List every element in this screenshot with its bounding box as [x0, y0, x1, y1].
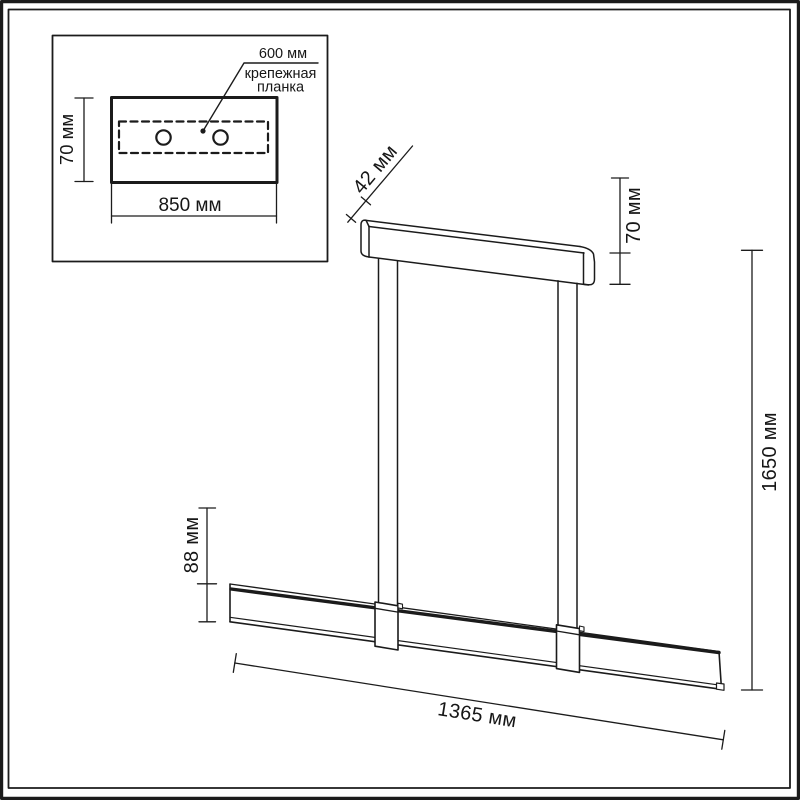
- technical-drawing: 600 мм крепежная планка 70 мм 850 мм: [0, 0, 800, 800]
- bar-top-face-edge: [231, 589, 719, 653]
- bar-height-dimension: 88 мм: [181, 508, 217, 622]
- bar-diffuser-edge: [230, 617, 721, 685]
- plate-width-label: 850 мм: [158, 195, 221, 216]
- rail-depth-dimension: 42 мм: [346, 141, 412, 223]
- rail-top-front-edge: [369, 227, 584, 254]
- ceiling-rail: [361, 220, 595, 285]
- bar-length-label: 1365 мм: [436, 698, 518, 732]
- inner-frame-border: [9, 10, 791, 789]
- bar-bottom-edge: [230, 622, 722, 690]
- bar-right-end-detail: [717, 683, 725, 690]
- tick: [361, 197, 370, 205]
- rail-bottom-edge: [369, 257, 589, 285]
- inset-width-dimension: 850 мм: [112, 184, 277, 223]
- tick: [346, 215, 355, 223]
- canopy-outline: [112, 98, 278, 183]
- drawing-canvas: 600 мм крепежная планка 70 мм 850 мм: [0, 0, 800, 800]
- suspension-rods: [379, 258, 578, 628]
- rail-height-dimension: 70 мм: [610, 178, 645, 284]
- bar-height-label: 88 мм: [181, 517, 203, 574]
- rail-height-label: 70 мм: [623, 187, 645, 244]
- hole-spacing-label: 600 мм: [259, 46, 307, 62]
- mounting-plate-dashed-outline: [119, 122, 268, 154]
- bar-length-dimension: 1365 мм: [233, 654, 725, 750]
- plate-height-label: 70 мм: [56, 114, 77, 165]
- fixture-dimensions: 42 мм 70 мм 1650 мм 88 мм: [181, 141, 781, 749]
- left-clamp-side-detail: [398, 603, 403, 609]
- mounting-plate-inset: 600 мм крепежная планка 70 мм 850 мм: [53, 36, 328, 262]
- rail-top-back-edge: [365, 220, 580, 246]
- dimension-line: [235, 663, 724, 740]
- plate-label-line2: планка: [257, 80, 305, 96]
- rail-left-cap: [361, 220, 369, 257]
- overall-height-label: 1650 мм: [759, 412, 781, 492]
- inset-height-dimension: 70 мм: [56, 98, 93, 182]
- right-clamp-side-detail: [580, 626, 585, 632]
- overall-height-dimension: 1650 мм: [742, 250, 781, 690]
- mounting-hole-left: [156, 130, 170, 144]
- mounting-hole-right: [213, 130, 227, 144]
